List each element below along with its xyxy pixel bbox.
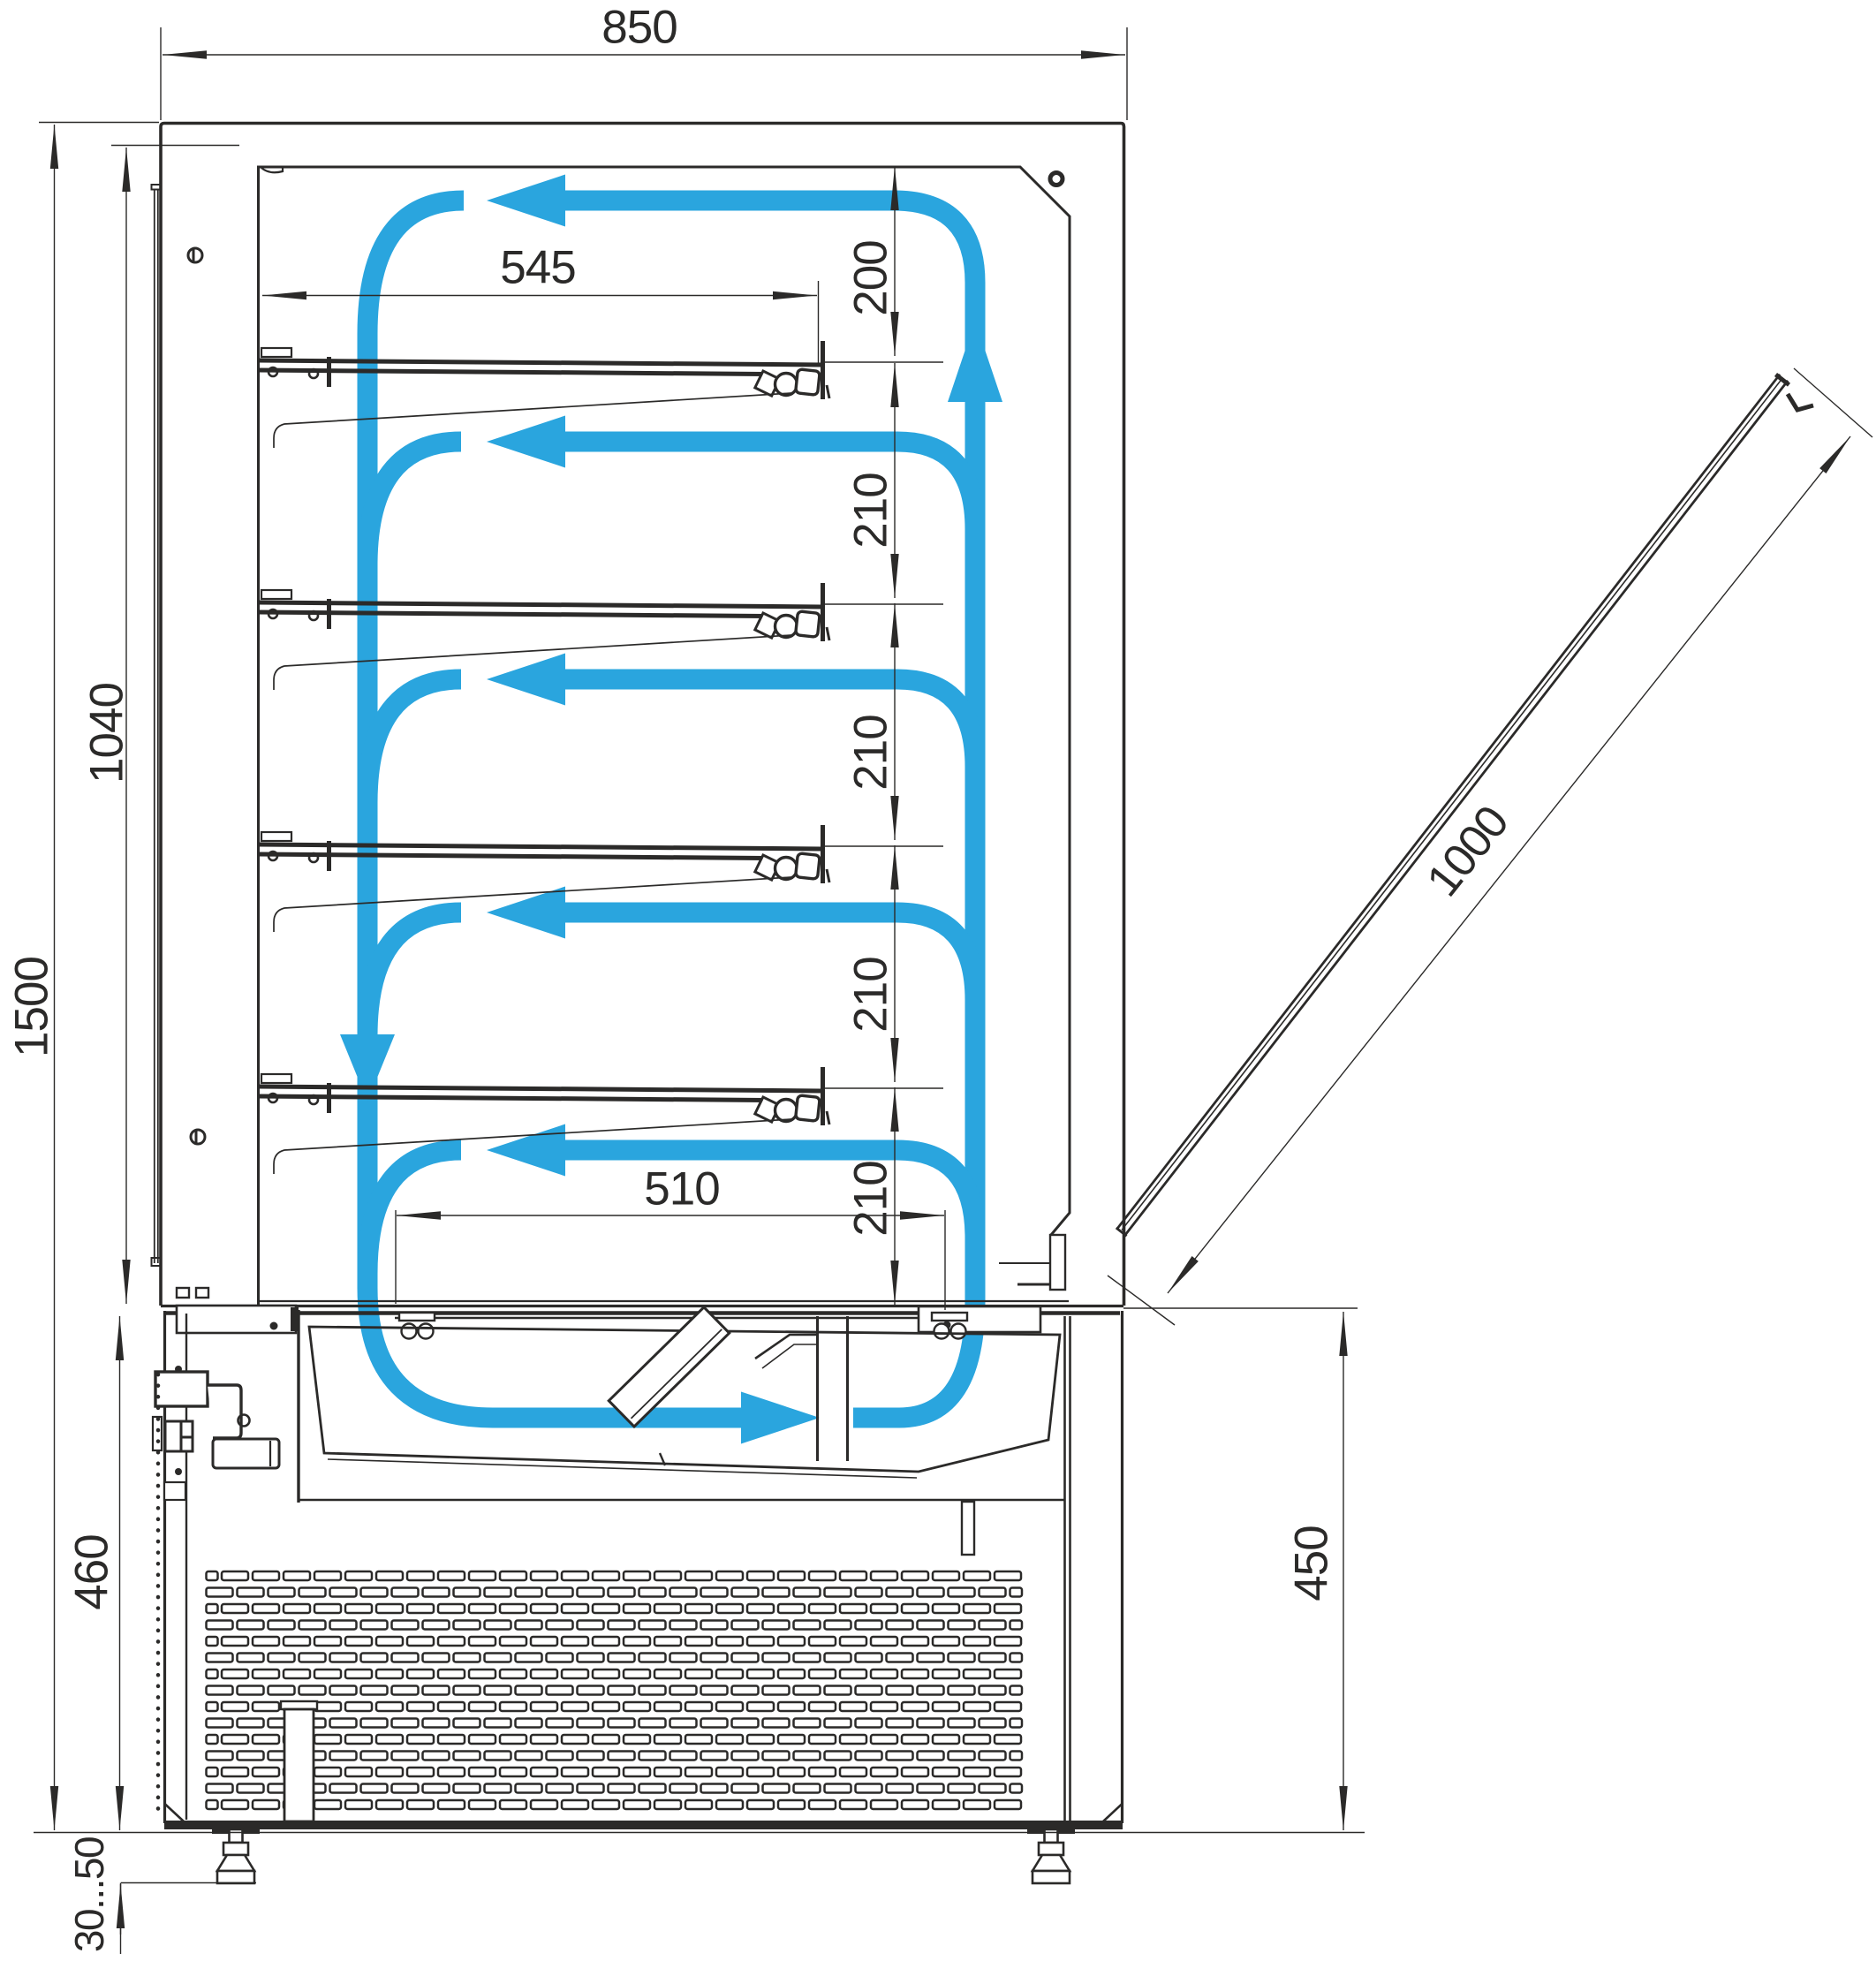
svg-text:850: 850: [601, 2, 677, 54]
svg-text:210: 210: [845, 473, 897, 548]
svg-text:1500: 1500: [6, 957, 58, 1057]
svg-text:200: 200: [845, 240, 897, 315]
svg-text:450: 450: [1286, 1526, 1338, 1601]
svg-text:460: 460: [66, 1534, 118, 1609]
svg-text:210: 210: [845, 1161, 897, 1236]
svg-text:1040: 1040: [81, 683, 133, 784]
svg-text:30...50: 30...50: [66, 1837, 112, 1952]
svg-text:210: 210: [845, 715, 897, 790]
svg-text:510: 510: [644, 1163, 719, 1215]
svg-text:210: 210: [845, 957, 897, 1032]
svg-text:545: 545: [500, 242, 575, 294]
